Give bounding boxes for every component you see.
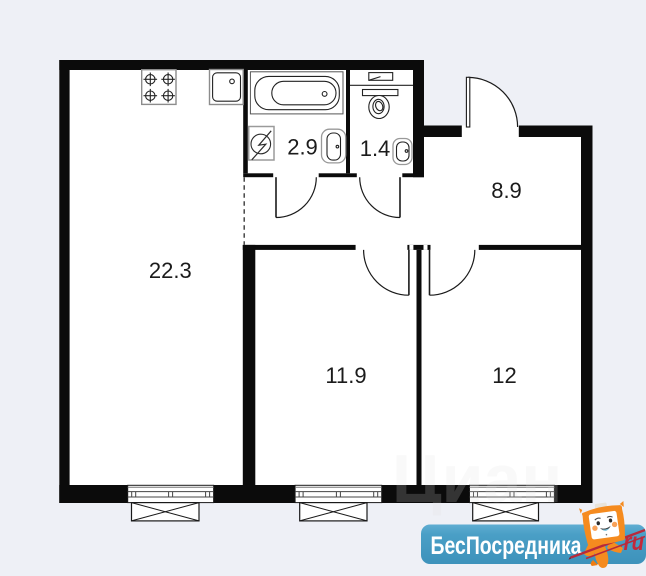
svg-text:Циан: Циан — [392, 441, 562, 517]
svg-text:БесПосредника: БесПосредника — [431, 532, 583, 560]
svg-text:8.9: 8.9 — [491, 178, 522, 203]
svg-text:2.9: 2.9 — [287, 135, 318, 160]
svg-text:1.4: 1.4 — [360, 136, 391, 161]
svg-text:11.9: 11.9 — [325, 363, 366, 388]
svg-text:22.3: 22.3 — [149, 258, 192, 283]
svg-text:12: 12 — [492, 363, 516, 388]
